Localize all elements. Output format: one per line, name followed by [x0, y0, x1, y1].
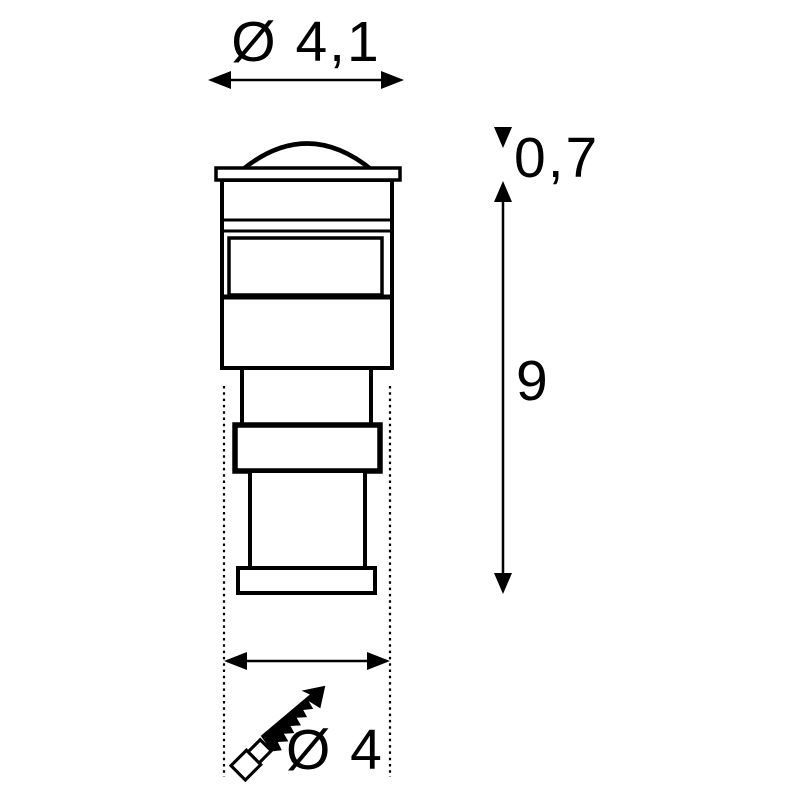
arrow-down-small-icon [494, 127, 512, 148]
arrow-down-icon [494, 573, 512, 594]
arrow-right-icon [381, 71, 404, 89]
bottom-diameter-dimension [224, 652, 390, 670]
arrow-right-icon [367, 652, 390, 670]
body-height-label: 9 [516, 352, 550, 412]
bottom-diameter-label: Ø 4 [286, 721, 384, 781]
tube-section [250, 471, 365, 568]
base-cap [238, 568, 375, 593]
luminaire-line-art [0, 0, 800, 800]
neck-section [242, 368, 371, 425]
fixture-outline [216, 144, 400, 594]
arrow-up-icon [494, 181, 512, 202]
lamp-window [229, 238, 382, 295]
top-diameter-label: Ø 4,1 [208, 13, 404, 73]
top-flange [216, 168, 400, 180]
cap-height-label: 0,7 [514, 129, 599, 189]
collar-section [235, 425, 380, 471]
dome-lens [242, 144, 372, 171]
arrow-left-icon [224, 652, 247, 670]
height-dimensions [494, 127, 512, 594]
technical-drawing-canvas: Ø 4,1 0,7 9 Ø 4 [0, 0, 800, 800]
arrow-left-icon [208, 71, 231, 89]
